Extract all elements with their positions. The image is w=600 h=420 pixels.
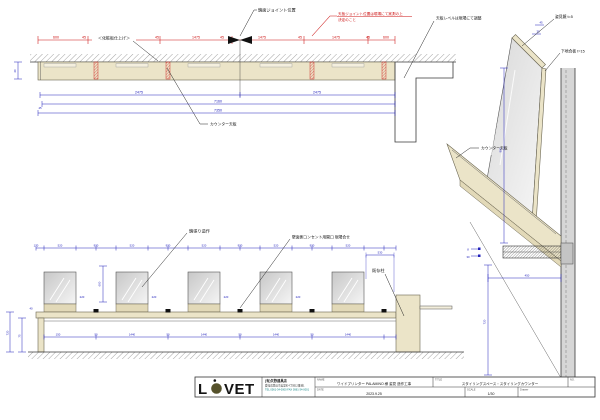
date-field-label: DATE	[317, 388, 324, 392]
counter-label: カウンター天板	[210, 122, 237, 127]
elev-dim: 520	[346, 244, 351, 248]
mirror-recess	[188, 64, 220, 68]
elev-dim: 1440	[201, 333, 208, 337]
fix-dim-marker	[478, 255, 481, 258]
mirror-recess	[116, 64, 148, 68]
name-field-label: NAME	[317, 378, 325, 382]
mirror-base	[116, 304, 148, 312]
side-dim: 220	[152, 295, 157, 299]
fixing-bracket	[382, 309, 387, 313]
ground-hatch	[28, 352, 464, 359]
existing-column	[396, 295, 420, 352]
elev-dim: 50	[310, 333, 314, 337]
sec-leg-dim: 720	[483, 319, 487, 324]
finish-label: ＜化粧板仕上げ＞	[98, 35, 130, 41]
wall-plate	[561, 243, 573, 264]
level-note-label: 天板レベルは現場にて調整	[436, 16, 482, 21]
fixing-bracket	[166, 309, 171, 313]
elev-dim: 930	[166, 244, 171, 248]
side-dim: 220	[80, 295, 85, 299]
red-note-line2: 決定のこと	[338, 17, 356, 22]
joint-mark	[310, 62, 314, 79]
scale-field-label: SCALE	[467, 388, 476, 392]
mirror-base	[332, 304, 364, 312]
title-field-label: TITLE	[435, 378, 442, 382]
red-dim: 45	[155, 36, 159, 40]
mirror-label-leader	[142, 233, 187, 287]
red-dim: 45	[366, 36, 370, 40]
no-field-label: NO.	[570, 378, 575, 382]
title-field-value: スタイリングスペース・スタイリングカウンター	[462, 381, 539, 386]
logo-o-circle	[211, 383, 222, 394]
name-field-value: ワイドプリンター PALAMINO 様 姿見 造作工事	[337, 381, 412, 386]
plan-depth-dim: 40	[13, 69, 17, 73]
joint-mark	[94, 62, 98, 79]
mirror-panel	[44, 272, 76, 312]
elev-dim: 930	[310, 244, 315, 248]
mirror-recess	[260, 64, 292, 68]
sec-mirror-label: 姿見鏡 t=5	[555, 14, 573, 19]
plan-dim-offset: 45	[38, 106, 42, 110]
sec-top-dim-a: 45	[539, 21, 543, 25]
sec-depth-dim: 450	[525, 274, 530, 278]
mirror-base	[188, 304, 220, 312]
sec-backing-label: 下地合板 t=15	[561, 49, 585, 54]
logo-text-l: L	[198, 381, 208, 398]
logo-dot	[214, 379, 217, 382]
sec-backing-leader	[545, 53, 560, 71]
mirror-label: 鏡張り造作	[189, 228, 211, 235]
red-note-line1: 天板ジョイント位置は現場にて実測の上	[338, 11, 403, 16]
mirror-panel	[332, 272, 364, 312]
elev-dim: 520	[202, 244, 207, 248]
plan-view: 600 45 1475 45 1475 45 1475 45 1475 45 6…	[13, 7, 482, 143]
fixing-bracket	[94, 309, 99, 313]
side-dim: 220	[296, 295, 301, 299]
elev-dim: 50	[94, 333, 98, 337]
sec-fix-dim-a: 8	[467, 248, 469, 252]
company-tel: TEL 0561-34-0000 FAX 0561-34-0001	[265, 388, 310, 392]
logo-text-vet: VET	[224, 381, 255, 398]
red-dim: 1475	[332, 36, 340, 40]
fixing-bracket	[238, 309, 243, 313]
red-dim: 45	[220, 36, 224, 40]
fix-dim-marker	[478, 248, 481, 251]
apron-dim: 75	[18, 334, 22, 338]
red-note-leader	[312, 16, 337, 36]
outlet-label: 壁面側コンセント用開口 現場合せ	[292, 235, 350, 240]
mirror-base	[260, 304, 292, 312]
gap-dim: 530	[378, 251, 383, 255]
wall-return	[395, 62, 453, 142]
red-dim: 45	[298, 36, 302, 40]
joint-leader	[240, 10, 257, 36]
elev-dim: 1440	[273, 333, 280, 337]
elev-dim: 1440	[129, 333, 136, 337]
mirror-base	[44, 304, 76, 312]
red-dim: 1475	[192, 36, 200, 40]
sec-counter-label: カウンター天板	[481, 146, 508, 151]
drawer-field-label: Drawer	[520, 388, 528, 392]
elev-dim: 150	[56, 333, 61, 337]
elev-dim: 930	[94, 244, 99, 248]
column-label: 既存柱	[372, 267, 385, 274]
sec-mirror-leader	[522, 19, 554, 46]
mirror-panels	[44, 272, 364, 312]
side-shelf-bar	[420, 306, 452, 309]
mirror-recess	[44, 64, 76, 68]
red-dim: 600	[53, 36, 59, 40]
joint-label: 鏡面ジョイント位置	[258, 7, 296, 14]
mirror-panel	[260, 272, 292, 312]
plan-dim: 2475	[135, 91, 143, 95]
sec-fix-dim-b: 30	[466, 255, 470, 259]
company-name: (有)矢野建具店	[265, 378, 288, 383]
red-dim: 1475	[258, 36, 266, 40]
section-view: 900 720 450 45 30 8 30 姿見鏡 t=5 下地合板 t=15…	[447, 14, 585, 397]
height-dim: 720	[6, 330, 10, 335]
side-dim: 220	[224, 295, 229, 299]
plan-dim: 7160	[214, 100, 222, 104]
elev-dim: 1440	[345, 333, 352, 337]
company-address: 愛知県豊田市美里町4丁目12番地1	[265, 384, 305, 388]
joint-mark	[382, 62, 386, 79]
cad-drawing-canvas: 600 45 1475 45 1475 45 1475 45 1475 45 6…	[0, 0, 600, 420]
elev-dim: 50	[166, 333, 170, 337]
red-dim: 600	[383, 36, 389, 40]
cad-drawing-sheet: 600 45 1475 45 1475 45 1475 45 1475 45 6…	[0, 0, 600, 420]
counter-top-elev	[36, 312, 396, 318]
title-block: L VET (有)矢野建具店 愛知県豊田市美里町4丁目12番地1 TEL 056…	[195, 377, 595, 398]
mirror-h-dim: 600	[98, 281, 102, 286]
mirror-panel	[188, 272, 220, 312]
plan-dim: 2475	[313, 91, 321, 95]
wall-section	[561, 68, 575, 397]
elev-dim: 170	[34, 244, 39, 248]
elev-dim: 50	[238, 333, 242, 337]
mirror-panel	[116, 272, 148, 312]
date-field-value: 2023.9.25	[366, 392, 382, 396]
top-thickness-dim: 40	[29, 307, 33, 311]
elev-dim: 930	[238, 244, 243, 248]
elev-dim: 520	[274, 244, 279, 248]
red-dim: 45	[82, 36, 86, 40]
joint-mark	[166, 62, 170, 79]
scale-field-value: 1/30	[488, 392, 495, 396]
level-note-leader	[404, 21, 434, 78]
mirror-recess	[332, 64, 364, 68]
elev-dim: 520	[130, 244, 135, 248]
counter-left-leg	[38, 318, 44, 352]
wall-hatch-band	[30, 54, 456, 62]
plan-dim: 7350	[214, 109, 222, 113]
fixing-bracket	[310, 309, 315, 313]
elev-dim: 520	[58, 244, 63, 248]
elevation-view: 170 520 930 520 930 520 930 520 930 520 …	[6, 228, 465, 360]
